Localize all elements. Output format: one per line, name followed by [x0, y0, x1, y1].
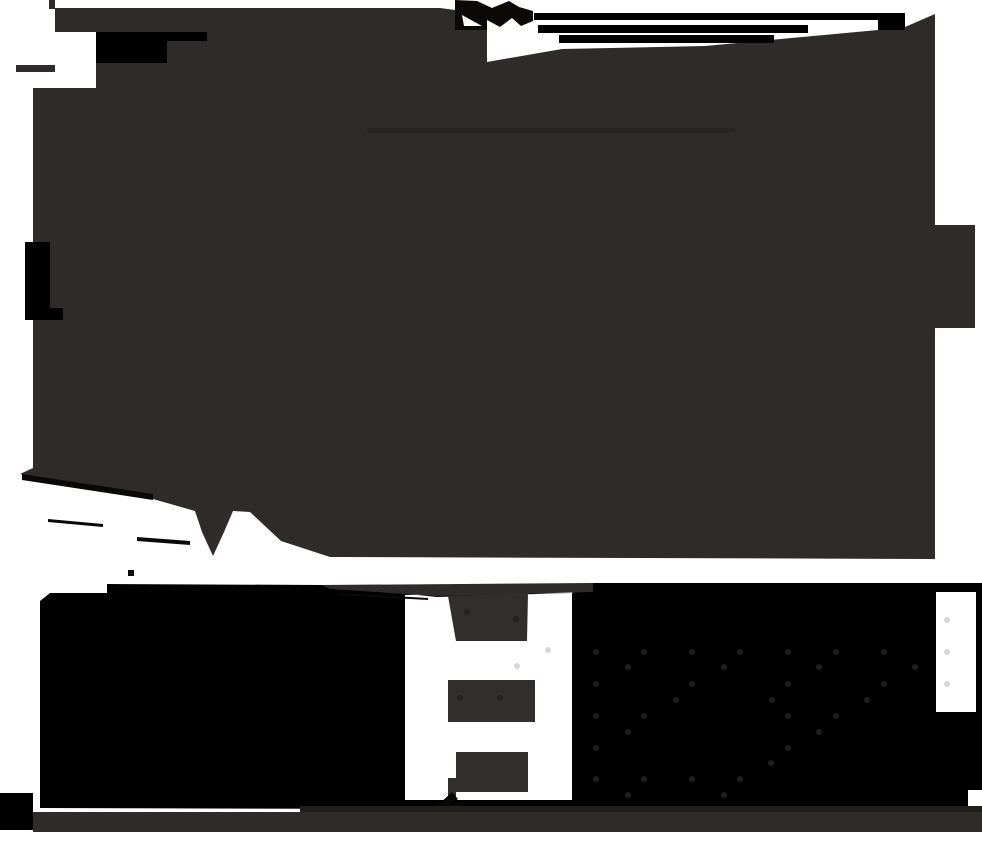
left-edge-black-rect	[25, 242, 50, 308]
dot-lattice-on-black-dot	[641, 776, 647, 782]
dashed-arrow-dash-2	[448, 680, 535, 722]
figure-root	[0, 0, 982, 844]
dot-lattice-on-black-dot	[593, 745, 599, 751]
dot-lattice-on-white-dot	[944, 681, 950, 687]
dot-lattice-on-black-dot	[641, 713, 647, 719]
dot-lattice-on-black-dot	[641, 649, 647, 655]
dot-lattice-on-black-dot	[768, 760, 774, 766]
dot-lattice-on-black-dot	[769, 697, 775, 703]
top-mass	[20, 8, 975, 559]
dot-lattice-on-dash-dot	[464, 609, 470, 615]
dot-lattice-on-black-dot	[721, 664, 727, 670]
dot-lattice-on-dash-dot	[457, 695, 463, 701]
dot-lattice-on-black-dot	[816, 729, 822, 735]
dot-lattice-on-black-dot	[864, 697, 870, 703]
dot-lattice-on-dash-dot	[513, 616, 519, 622]
dot-lattice-on-black-dot	[816, 664, 822, 670]
dot-lattice-on-black-dot	[689, 776, 695, 782]
dot-lattice-on-black-dot	[625, 729, 631, 735]
top-left-black-rect	[96, 32, 167, 63]
dot-lattice-on-dash-dot	[497, 695, 503, 701]
dot-lattice-on-white-dot	[944, 617, 950, 623]
dot-lattice-on-black-dot	[881, 649, 887, 655]
dot-lattice-on-white-dot	[944, 649, 950, 655]
dot-lattice-on-black-dot	[737, 649, 743, 655]
dot-lattice-on-black-dot	[689, 649, 695, 655]
footer-dark-strip	[300, 806, 982, 813]
dot-lattice-on-white-dot	[514, 663, 520, 669]
dot-lattice-on-black-dot	[593, 776, 599, 782]
dot-lattice-on-black-dot	[673, 697, 679, 703]
dot-lattice-on-black-dot	[785, 713, 791, 719]
dot-lattice-on-black-dot	[833, 649, 839, 655]
dot-lattice-on-black-dot	[625, 792, 631, 798]
dot-lattice-on-black-dot	[689, 681, 695, 687]
dot-lattice-on-black-dot	[881, 681, 887, 687]
band-speck	[128, 570, 134, 576]
dot-lattice-on-black-dot	[785, 681, 791, 687]
footer-gray-strip	[33, 812, 982, 832]
dot-lattice-on-black-dot	[721, 792, 727, 798]
top-bar-1b	[878, 20, 905, 30]
top-left-spike-vertical	[49, 0, 55, 9]
top-bar-3	[559, 35, 774, 43]
dot-lattice-on-black-dot	[912, 664, 918, 670]
bottom-left-corner-black	[0, 793, 33, 830]
dot-lattice-on-black-dot	[737, 776, 743, 782]
faint-interior-line	[367, 128, 735, 133]
dashed-arrow-dash-3	[456, 752, 528, 792]
dot-lattice-on-black-dot	[785, 649, 791, 655]
top-bar-2	[538, 25, 808, 33]
dot-lattice-on-black-dot	[593, 649, 599, 655]
dot-lattice-on-black-dot	[625, 664, 631, 670]
left-spike-horizontal	[16, 65, 55, 72]
top-bar-1	[534, 13, 905, 20]
top-left-black-ext	[167, 32, 207, 41]
dot-lattice-on-black-dot	[833, 713, 839, 719]
dot-lattice-on-black-dot	[593, 681, 599, 687]
abstract-figure-svg	[0, 0, 982, 844]
dot-lattice-on-black-dot	[785, 745, 791, 751]
dot-lattice-on-black-dot	[593, 713, 599, 719]
dot-lattice-on-white-dot	[545, 647, 551, 653]
left-edge-black-rect-2	[25, 308, 63, 320]
